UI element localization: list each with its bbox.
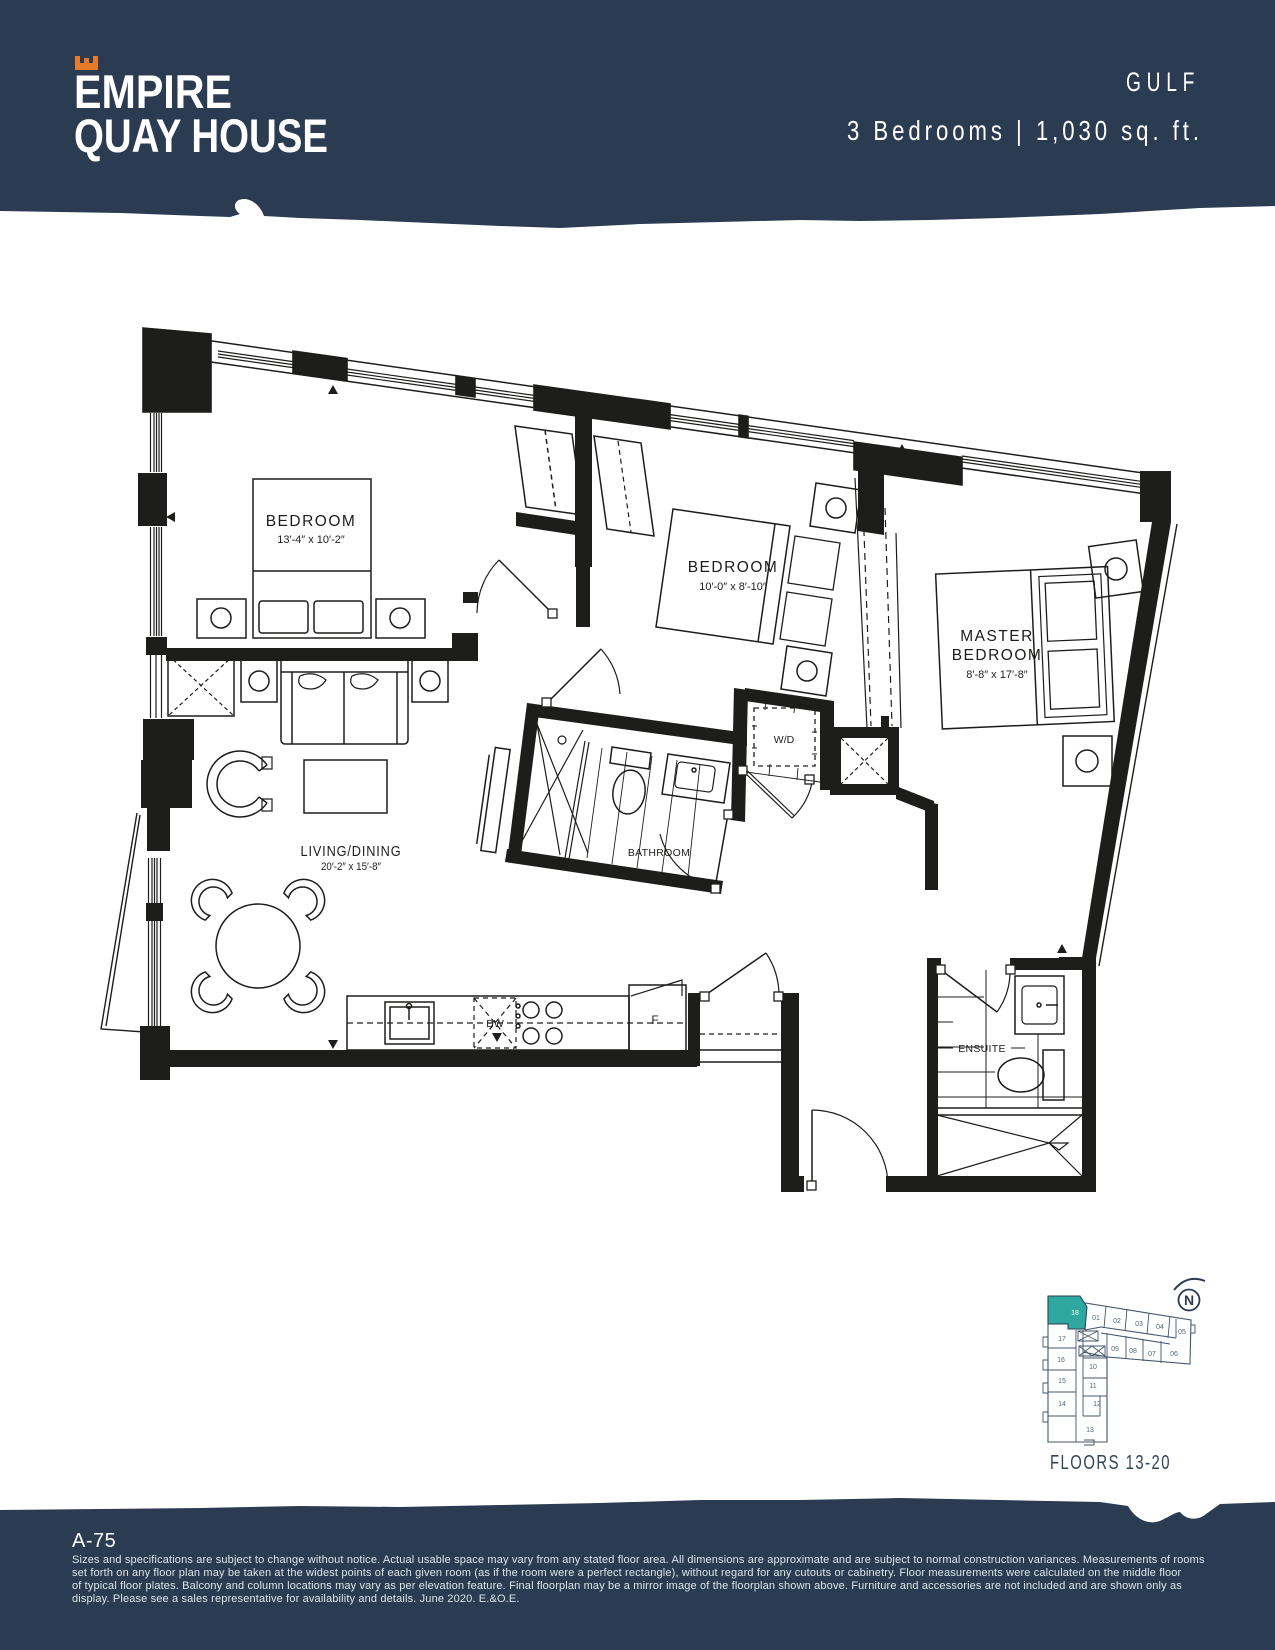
svg-text:Sizes and specifications are s: Sizes and specifications are subject to … [72, 1554, 1205, 1566]
svg-text:10: 10 [1089, 1364, 1097, 1371]
svg-text:F: F [651, 1013, 658, 1027]
svg-text:15: 15 [1058, 1378, 1066, 1385]
svg-text:11: 11 [1089, 1383, 1096, 1390]
svg-text:01: 01 [1092, 1315, 1100, 1322]
svg-text:12: 12 [1093, 1401, 1101, 1408]
svg-text:LIVING/DINING: LIVING/DINING [301, 843, 402, 860]
svg-text:BATHROOM: BATHROOM [628, 847, 690, 859]
svg-text:display. Please see a sales re: display. Please see a sales representati… [72, 1593, 520, 1605]
svg-text:09: 09 [1111, 1346, 1119, 1353]
svg-text:set forth on any floor plan ma: set forth on any floor plan may be taken… [72, 1567, 1182, 1579]
svg-text:3 Bedrooms | 1,030 sq. ft.: 3 Bedrooms | 1,030 sq. ft. [847, 115, 1203, 146]
svg-text:W/D: W/D [774, 734, 795, 746]
svg-text:03: 03 [1135, 1321, 1143, 1328]
svg-text:BEDROOM: BEDROOM [952, 647, 1043, 664]
svg-text:FLOORS 13-20: FLOORS 13-20 [1050, 1452, 1171, 1474]
svg-text:10′-0″ x 8′-10″: 10′-0″ x 8′-10″ [699, 581, 767, 593]
svg-text:20′-2″ x 15′-8″: 20′-2″ x 15′-8″ [321, 861, 381, 873]
svg-text:08: 08 [1129, 1348, 1137, 1355]
svg-text:of typical floor plates. Balco: of typical floor plates. Balcony and col… [72, 1580, 1182, 1592]
svg-text:14: 14 [1058, 1401, 1066, 1408]
svg-text:18: 18 [1071, 1310, 1079, 1317]
svg-text:16: 16 [1057, 1357, 1065, 1364]
svg-text:MASTER: MASTER [960, 628, 1034, 645]
svg-text:BEDROOM: BEDROOM [266, 513, 357, 530]
svg-text:ENSUITE: ENSUITE [958, 1043, 1006, 1055]
svg-text:06: 06 [1170, 1351, 1178, 1358]
svg-text:A-75: A-75 [72, 1530, 116, 1552]
svg-text:13′-4″ x 10′-2″: 13′-4″ x 10′-2″ [277, 534, 345, 546]
svg-text:QUAY HOUSE: QUAY HOUSE [74, 109, 328, 162]
svg-text:GULF: GULF [1126, 67, 1200, 97]
svg-text:8′-8″ x 17′-8″: 8′-8″ x 17′-8″ [966, 669, 1028, 681]
svg-text:17: 17 [1058, 1336, 1066, 1343]
svg-text:DW: DW [486, 1018, 504, 1030]
svg-text:05: 05 [1178, 1329, 1186, 1336]
svg-text:07: 07 [1148, 1351, 1156, 1358]
svg-text:02: 02 [1113, 1318, 1121, 1325]
svg-text:BEDROOM: BEDROOM [688, 559, 779, 576]
svg-text:N: N [1184, 1292, 1194, 1308]
svg-text:04: 04 [1156, 1324, 1164, 1331]
svg-text:13: 13 [1086, 1427, 1094, 1434]
